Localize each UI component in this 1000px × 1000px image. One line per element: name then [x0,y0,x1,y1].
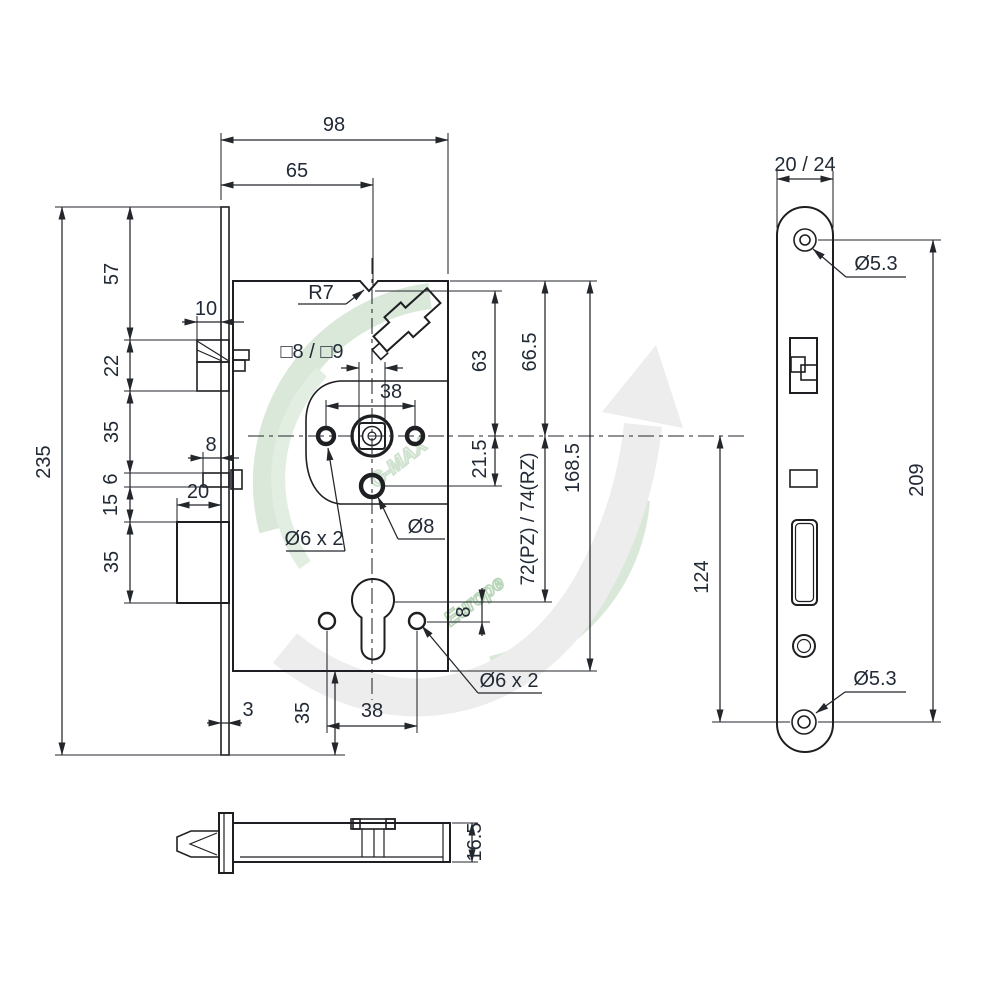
latch-bolt-body [197,362,229,391]
dim-seg-latch: 22 [101,355,123,377]
fix-hole-bottom-left [319,613,335,629]
faceplate-view: 20 / 24 Ø5.3 209 124 Ø5.3 [691,154,941,752]
cylinder-housing-lines [362,829,384,857]
faceplate-outline [777,207,833,752]
dim-screw-hole-top: Ø5.3 [854,253,897,275]
dim-backset: 65 [286,160,308,182]
latch-bevel-lines [190,833,217,855]
technical-drawing: G-MAX Europe [0,0,1000,1000]
euro-cylinder-hole [352,579,394,659]
dim-case-thickness: 16.5 [464,823,486,862]
dim-centre-distance: 72(PZ) / 74(RZ) [518,452,539,585]
aux-cutout [790,470,817,487]
dim-fix-holes-bottom: Ø6 x 2 [480,670,539,692]
screw-hole-bottom-inner [798,716,810,728]
deadbolt-slot-inner [796,524,814,602]
faceplate-edge [221,207,229,755]
dim-seg-bolt: 35 [101,551,123,573]
dim-height-total: 235 [33,445,55,478]
latch-guide-b [233,360,245,371]
dim-seg-stub: 6 [100,473,122,484]
dim-notch-radius: R7 [308,282,334,304]
screw-hole-top-inner [800,235,810,245]
dim-case-height: 168.5 [562,443,584,493]
case-section [233,823,450,862]
watermark-arrowhead [602,345,683,428]
dim-seg-top: 57 [101,263,123,285]
dim-fix-holes-top: Ø6 x 2 [285,528,344,550]
dim-latch-protrusion: 10 [195,298,217,320]
dim-plate-thickness: 3 [242,699,253,721]
drawing-canvas: G-MAX Europe [0,0,1000,1000]
dim-depth-total: 98 [323,114,345,136]
dim-screw-hole-bottom: Ø5.3 [853,668,896,690]
dim-axis-to-screw: 124 [691,560,713,593]
dim-bolt-throw: 20 [187,481,209,503]
dim-seg-gap: 15 [100,494,122,516]
dim-spindle-square: □8 / □9 [280,341,343,363]
dim-seg-mid: 35 [101,421,123,443]
dim-top-to-axis: 66.5 [519,333,541,372]
dim-axis-to-hole: 21.5 [469,440,491,479]
screw-hole-top-outer [794,229,816,251]
dim-screw-spacing: 209 [906,463,928,496]
dim-faceplate-width: 20 / 24 [774,154,835,176]
dim-axis-offset: 8 [453,606,475,617]
dim-bolt-protrusion: 8 [205,434,216,456]
dim-notch-to-axis: 63 [469,350,491,372]
dim-cyl-hole-spacing: 38 [361,700,383,722]
faceplate-section [219,813,233,873]
guide-hole-outer [793,635,815,657]
dim-follower-hole-spacing: 38 [380,381,402,403]
guide-hole-inner [798,640,811,653]
latch-guide-a [233,350,249,360]
bottom-view: 16.5 [177,813,486,873]
dim-hole-mid: Ø8 [408,516,435,538]
dim-case-to-plate-end: 35 [292,702,314,724]
screw-hole-bottom-outer [792,710,816,734]
